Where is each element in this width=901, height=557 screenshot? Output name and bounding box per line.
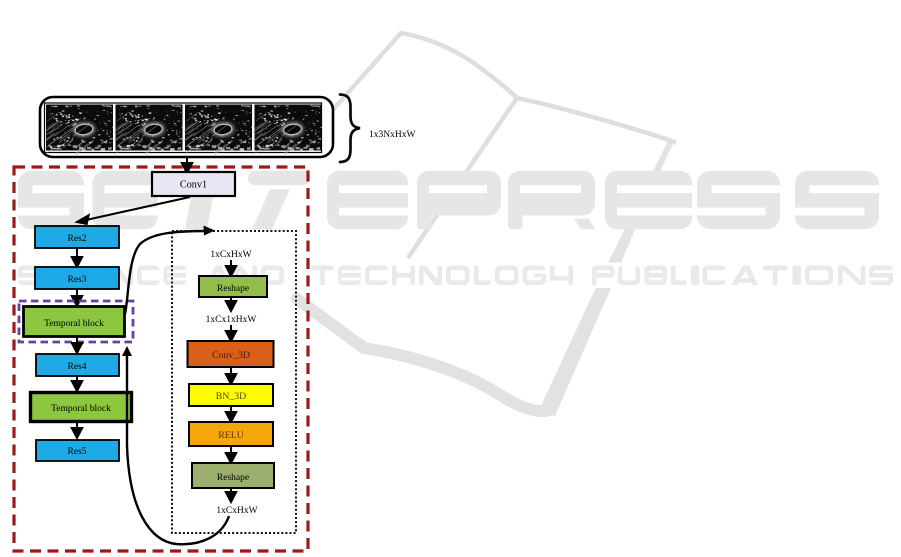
svg-text:Reshape: Reshape [217, 284, 249, 294]
svg-text:Temporal block: Temporal block [44, 319, 104, 329]
svg-text:1xCx1xHxW: 1xCx1xHxW [206, 315, 257, 325]
svg-text:RELU: RELU [218, 430, 244, 441]
svg-text:Res5: Res5 [68, 447, 87, 457]
svg-text:Reshape: Reshape [217, 473, 249, 483]
svg-text:1xCxHxW: 1xCxHxW [216, 506, 257, 516]
svg-text:1x3NxHxW: 1x3NxHxW [369, 130, 415, 140]
svg-text:Conv_3D: Conv_3D [212, 350, 250, 361]
svg-text:Res3: Res3 [68, 275, 87, 285]
svg-text:Res2: Res2 [68, 234, 87, 244]
svg-text:BN_3D: BN_3D [216, 391, 246, 402]
svg-text:Conv1: Conv1 [180, 180, 207, 191]
svg-text:Res4: Res4 [68, 362, 87, 372]
svg-text:Temporal block: Temporal block [51, 404, 111, 414]
svg-text:1xCxHxW: 1xCxHxW [210, 250, 251, 260]
